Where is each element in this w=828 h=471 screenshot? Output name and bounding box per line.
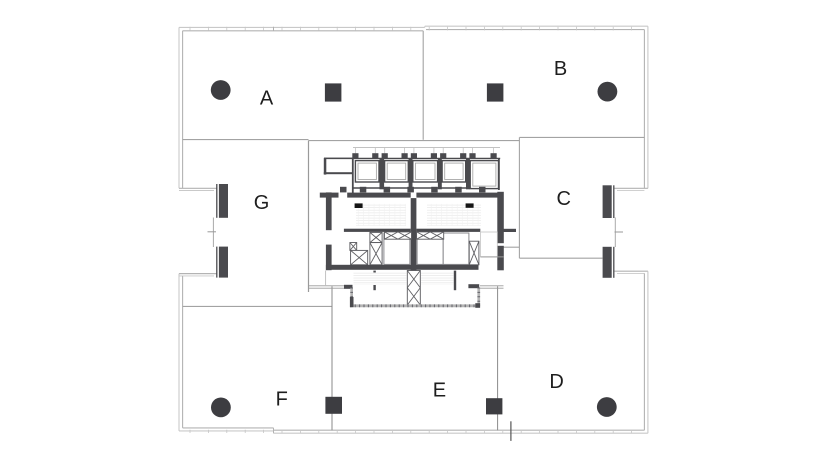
svg-text:E: E <box>433 379 446 401</box>
svg-text:B: B <box>554 58 567 80</box>
svg-text:A: A <box>260 88 274 110</box>
svg-text:D: D <box>549 371 563 393</box>
svg-text:C: C <box>556 188 570 210</box>
svg-text:F: F <box>276 388 288 410</box>
svg-text:G: G <box>254 192 270 214</box>
